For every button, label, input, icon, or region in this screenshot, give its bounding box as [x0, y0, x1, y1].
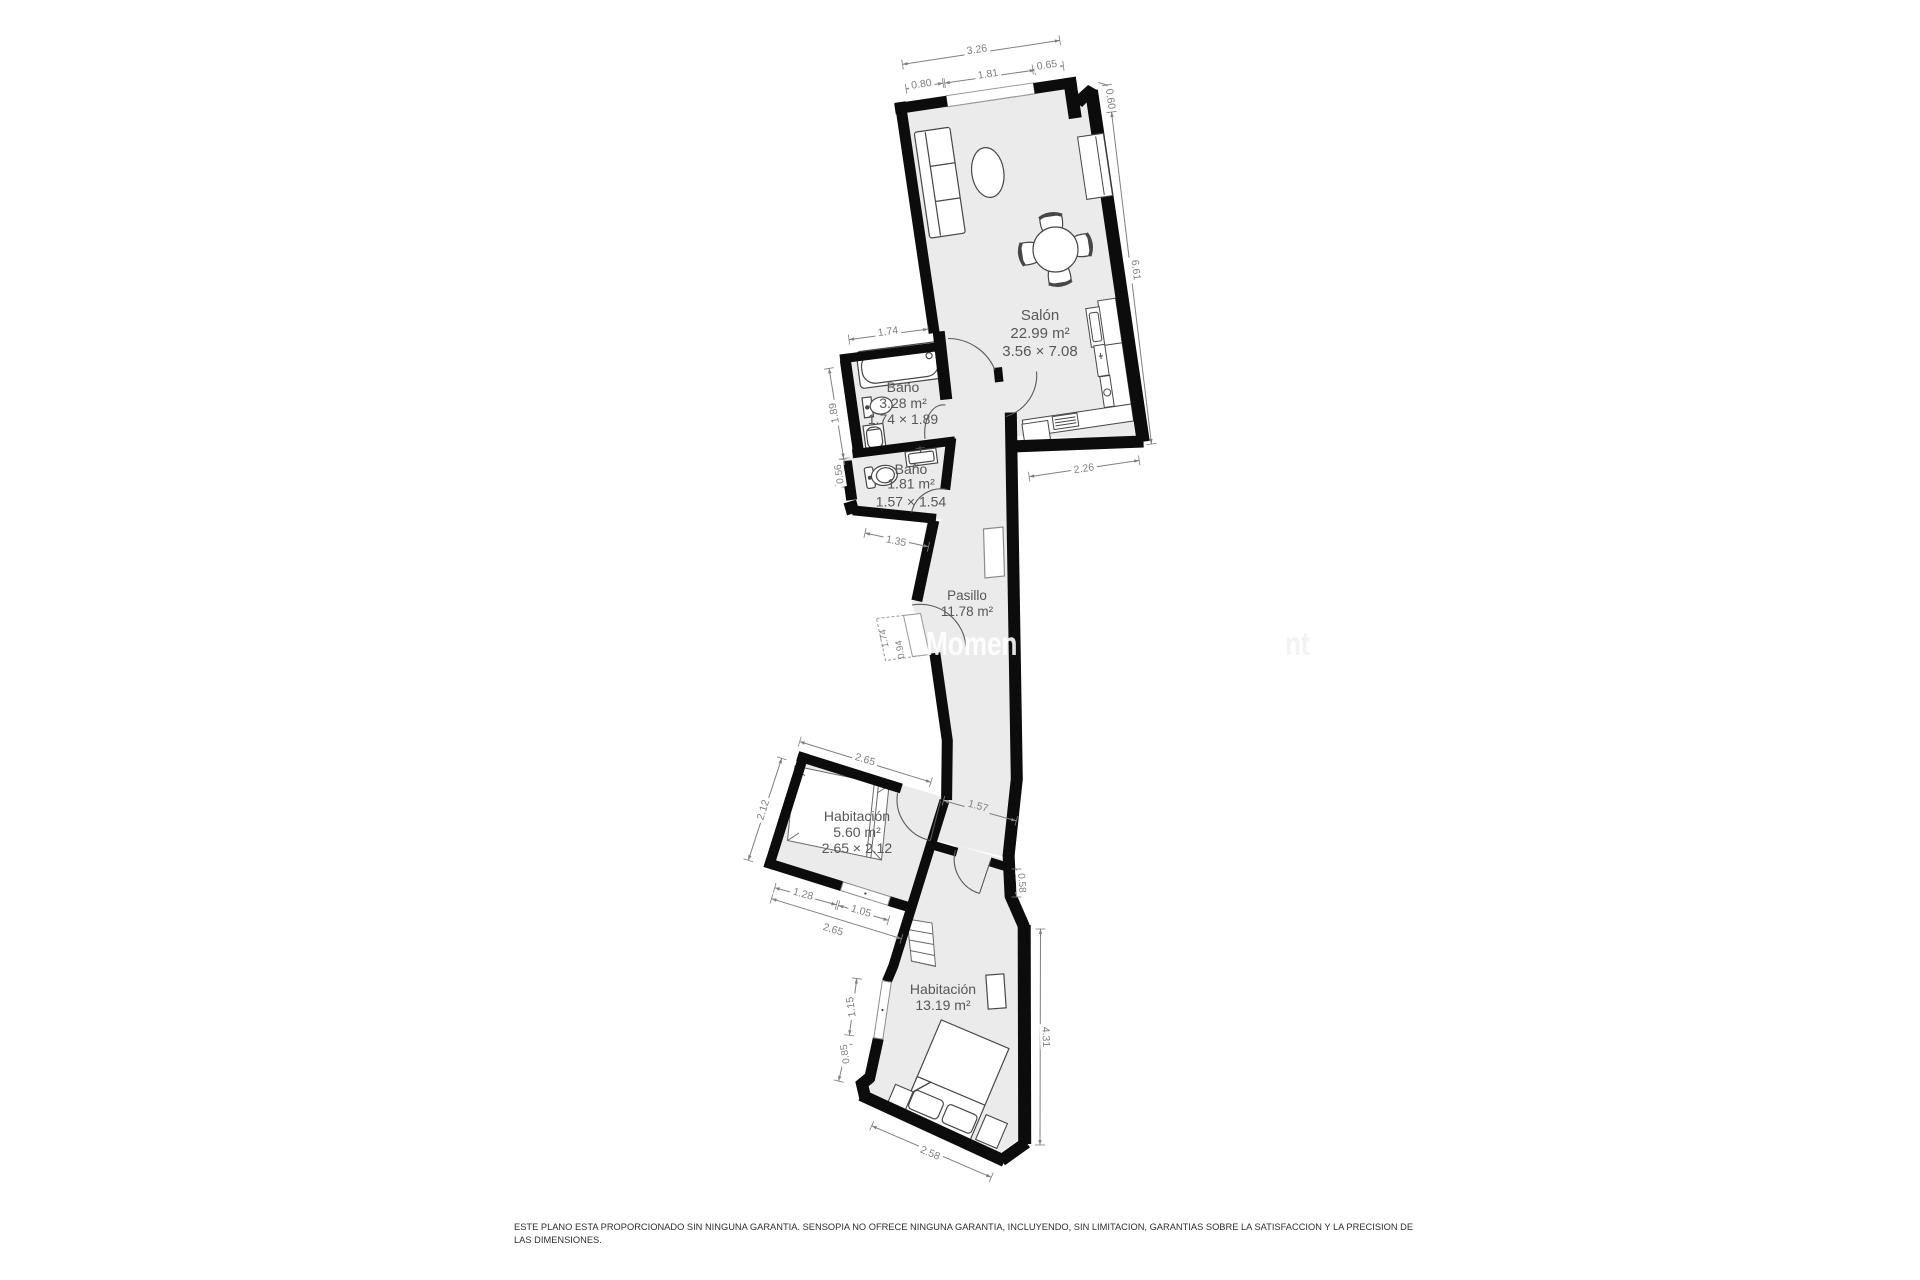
svg-text:0.65: 0.65 — [1036, 58, 1058, 73]
svg-text:6.61: 6.61 — [1129, 259, 1143, 281]
svg-text:0.58: 0.58 — [1015, 873, 1027, 894]
svg-text:Habitación: Habitación — [824, 808, 890, 824]
svg-text:Salón: Salón — [1021, 307, 1059, 324]
svg-text:0.60: 0.60 — [1103, 88, 1118, 110]
svg-text:nt: nt — [1285, 626, 1310, 663]
svg-text:1.81 m²: 1.81 m² — [887, 476, 935, 492]
svg-text:1.74: 1.74 — [877, 324, 899, 339]
svg-text:1.81: 1.81 — [977, 67, 999, 82]
svg-text:13.19 m²: 13.19 m² — [915, 997, 971, 1013]
svg-text:LAS DIMENSIONES.: LAS DIMENSIONES. — [514, 1235, 602, 1245]
svg-text:4.31: 4.31 — [1039, 1027, 1052, 1048]
svg-text:3.26: 3.26 — [966, 42, 988, 57]
svg-text:Habitación: Habitación — [910, 981, 976, 997]
svg-text:1.15: 1.15 — [844, 996, 859, 1018]
svg-text:11.78 m²: 11.78 m² — [941, 604, 994, 619]
svg-text:1.05: 1.05 — [850, 903, 873, 920]
svg-text:1.57 × 1.54: 1.57 × 1.54 — [876, 494, 947, 510]
svg-text:3.28 m²: 3.28 m² — [879, 395, 927, 411]
svg-text:1.35: 1.35 — [885, 533, 908, 549]
svg-text:2.65 × 2.12: 2.65 × 2.12 — [822, 840, 893, 856]
svg-text:0.85: 0.85 — [839, 1043, 853, 1064]
svg-text:1.28: 1.28 — [792, 886, 815, 903]
svg-text:Baño: Baño — [887, 379, 920, 395]
svg-text:2.65: 2.65 — [822, 921, 845, 939]
svg-text:22.99 m²: 22.99 m² — [1010, 325, 1069, 342]
svg-text:2.12: 2.12 — [754, 798, 772, 821]
svg-text:2.26: 2.26 — [1073, 461, 1095, 476]
svg-text:1.74 × 1.89: 1.74 × 1.89 — [868, 411, 939, 427]
svg-text:0.80: 0.80 — [910, 77, 932, 92]
svg-text:3.56 × 7.08: 3.56 × 7.08 — [1002, 343, 1077, 360]
svg-text:Momen: Momen — [926, 626, 1017, 663]
svg-text:ESTE PLANO ESTA PROPORCIONADO: ESTE PLANO ESTA PROPORCIONADO SIN NINGUN… — [514, 1222, 1413, 1232]
svg-text:2.65: 2.65 — [854, 751, 877, 769]
svg-text:Pasillo: Pasillo — [947, 588, 987, 603]
svg-text:1.89: 1.89 — [827, 402, 842, 424]
svg-text:5.60 m²: 5.60 m² — [833, 824, 881, 840]
